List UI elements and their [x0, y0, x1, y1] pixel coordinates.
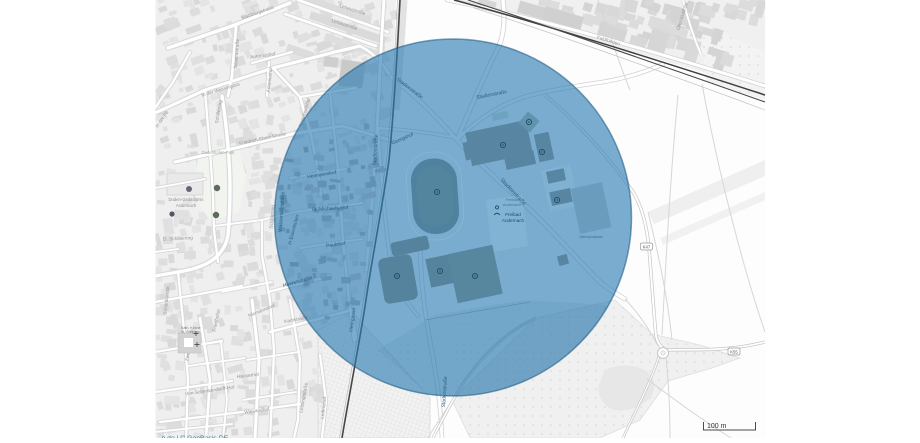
svg-text:K55: K55 [730, 349, 738, 354]
svg-text:Duden-Gedächtnis: Duden-Gedächtnis [169, 197, 204, 202]
svg-text:Freibad: Freibad [505, 212, 521, 217]
svg-text:100 m: 100 m [707, 423, 727, 430]
svg-text:· Jahnsportplatz: · Jahnsportplatz [577, 235, 603, 239]
svg-text:Andernach: Andernach [502, 218, 525, 223]
svg-text:n.de | © GeoBasis-DE: n.de | © GeoBasis-DE [162, 434, 229, 438]
svg-text:K47: K47 [643, 244, 651, 249]
svg-text:Andernach: Andernach [176, 203, 197, 208]
svg-text:St. Stephan: St. Stephan [181, 330, 200, 334]
svg-text:Dudenhofen-Park: Dudenhofen-Park [202, 150, 236, 155]
svg-text:Andernach: Andernach [503, 203, 521, 207]
